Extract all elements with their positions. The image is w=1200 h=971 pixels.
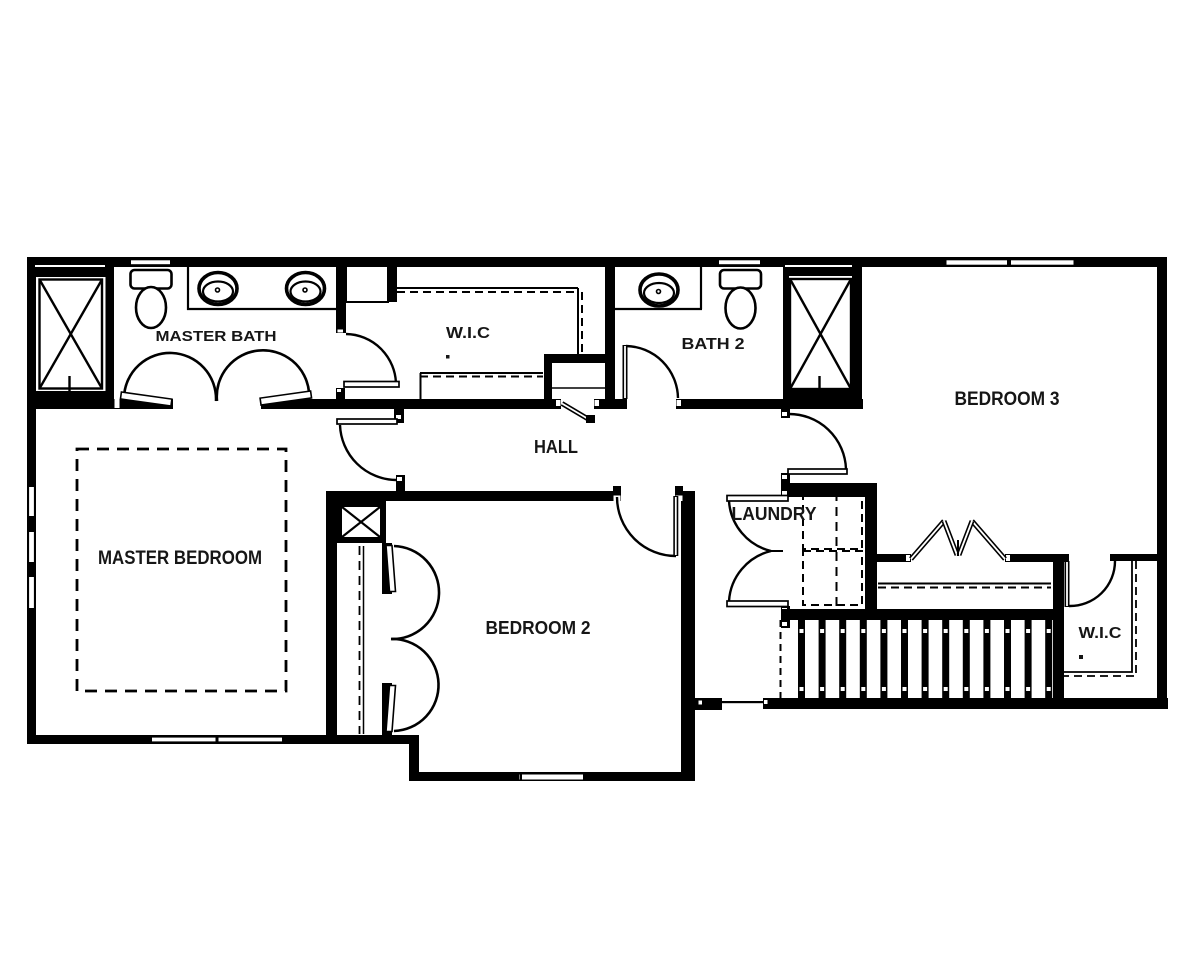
svg-text:BATH 2: BATH 2 xyxy=(682,336,745,353)
svg-text:W.I.C: W.I.C xyxy=(446,325,491,342)
svg-text:MASTER BEDROOM: MASTER BEDROOM xyxy=(98,548,262,569)
svg-text:BEDROOM 2: BEDROOM 2 xyxy=(486,618,591,638)
svg-text:HALL: HALL xyxy=(534,437,578,457)
svg-text:BEDROOM 3: BEDROOM 3 xyxy=(955,389,1060,410)
svg-text:W.I.C: W.I.C xyxy=(1079,625,1122,642)
svg-text:LAUNDRY: LAUNDRY xyxy=(732,504,817,524)
svg-text:MASTER BATH: MASTER BATH xyxy=(156,328,277,345)
